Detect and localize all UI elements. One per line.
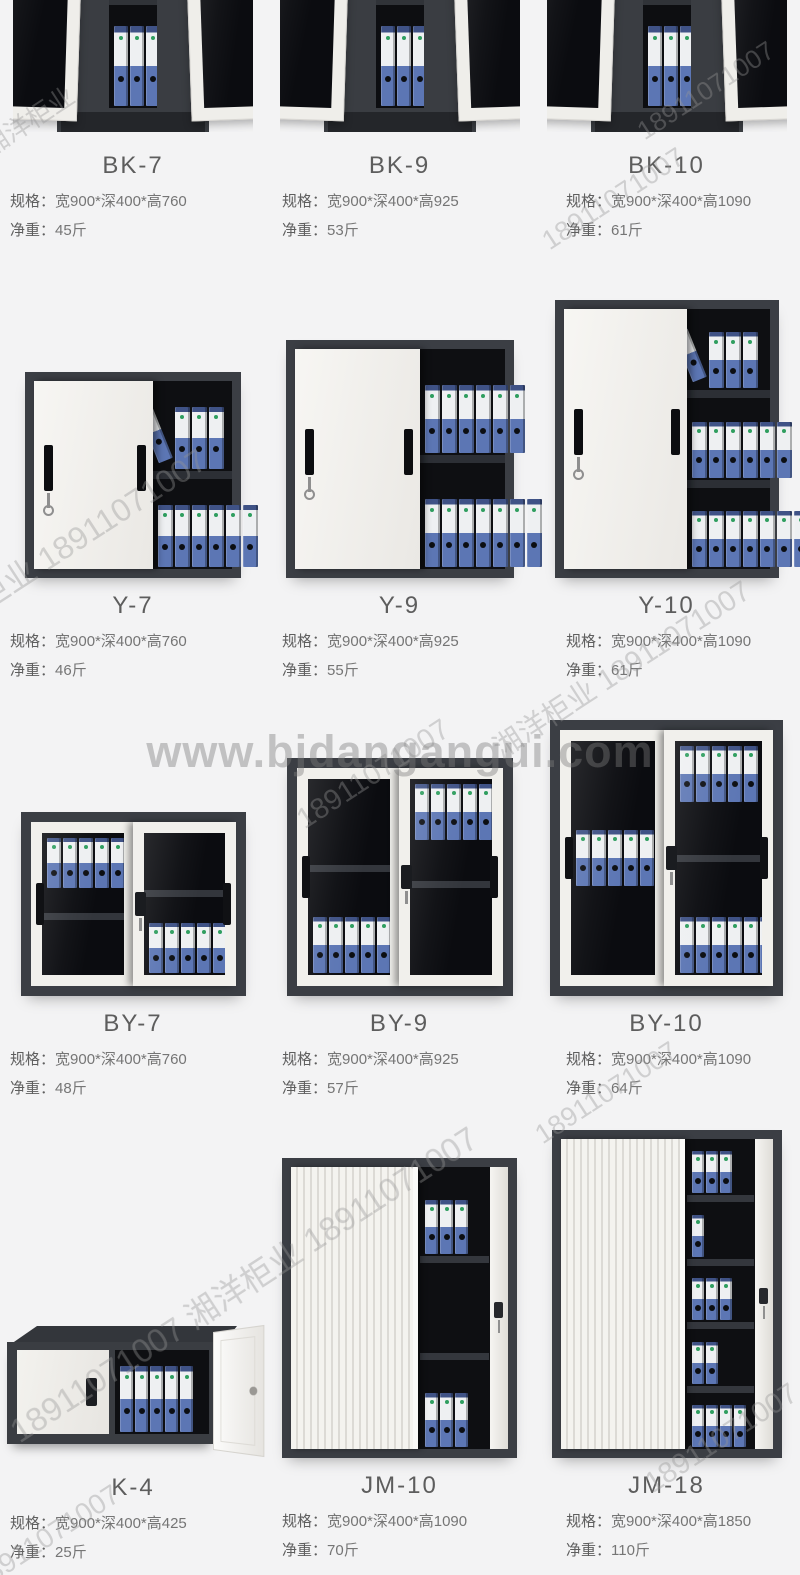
product-specs: 规格：宽900*深400*高760 净重：46斤	[0, 627, 266, 685]
door-handle-icon	[404, 429, 413, 475]
binder	[345, 917, 359, 973]
key-icon	[139, 918, 142, 931]
spec-label: 规格：	[566, 1051, 611, 1068]
binder	[476, 385, 491, 453]
binder-row	[425, 1393, 468, 1447]
product-specs: 规格：宽900*深400*高925 净重：53斤	[266, 187, 533, 245]
weight-value: 70斤	[327, 1542, 359, 1559]
shelf	[687, 1386, 753, 1393]
lock-icon	[135, 892, 146, 916]
binder	[209, 505, 224, 567]
binder	[760, 511, 775, 567]
binder	[728, 917, 742, 973]
shelf	[109, 0, 157, 5]
weight-value: 57斤	[327, 1080, 359, 1097]
product-specs: 规格：宽900*深400*高925 净重：57斤	[266, 1045, 533, 1103]
binder	[130, 26, 144, 106]
binder	[760, 422, 775, 478]
door-handle-icon	[490, 856, 498, 898]
binder	[624, 830, 638, 886]
binder	[111, 838, 124, 888]
binder-row	[692, 332, 758, 388]
shelf	[144, 890, 225, 897]
binder	[442, 385, 457, 453]
shelf	[643, 0, 691, 5]
binder	[47, 838, 61, 888]
glass-door-right	[182, 0, 253, 121]
shelf	[687, 480, 770, 488]
binder	[425, 499, 440, 567]
binder	[696, 917, 710, 973]
tambour-edge-strip	[490, 1167, 508, 1449]
binder	[209, 407, 224, 469]
lock-icon	[666, 846, 677, 870]
binder	[720, 1151, 732, 1193]
weight-label: 净重：	[10, 1080, 55, 1097]
empty-shelf	[420, 1263, 489, 1352]
product-model: Y-7	[0, 590, 266, 622]
shelf-stack	[420, 1167, 489, 1449]
key-icon	[47, 493, 50, 508]
shelf	[420, 1256, 489, 1263]
binder	[640, 830, 654, 886]
spec-row: 规格：宽900*深400*高925	[266, 187, 533, 216]
binder-row	[313, 917, 390, 973]
binder	[213, 923, 225, 973]
binder	[709, 511, 724, 567]
spec-label: 规格：	[282, 1051, 327, 1068]
key-icon	[670, 872, 673, 885]
binder	[726, 511, 741, 567]
weight-row: 净重：110斤	[533, 1536, 800, 1565]
binder	[413, 26, 424, 106]
binder-row	[680, 917, 762, 973]
product-image-y10	[533, 258, 800, 578]
binder	[165, 1366, 178, 1432]
binder	[493, 499, 508, 567]
glass-pane	[280, 0, 339, 108]
binder-row	[692, 422, 792, 478]
glass-pane	[196, 0, 253, 108]
door-handle-icon	[44, 445, 53, 491]
binder	[226, 505, 241, 567]
spec-label: 规格：	[282, 633, 327, 650]
glass-sliding-door-right	[399, 768, 503, 986]
binder	[415, 784, 429, 840]
shelf	[687, 1195, 753, 1202]
binder	[726, 332, 741, 388]
weight-value: 46斤	[55, 662, 87, 679]
shelf	[410, 881, 492, 888]
weight-label: 净重：	[282, 1542, 327, 1559]
shelf	[420, 455, 505, 463]
binder	[243, 505, 258, 567]
glass-pane	[144, 833, 225, 975]
spec-label: 规格：	[282, 1513, 327, 1530]
binder	[425, 1393, 438, 1447]
spec-label: 规格：	[10, 1051, 55, 1068]
binder	[79, 838, 93, 888]
product-model: BK-7	[0, 150, 266, 182]
shelf	[308, 865, 390, 872]
product-model: K-4	[0, 1472, 266, 1504]
cabinet-frame	[21, 812, 246, 996]
shelf	[687, 1259, 753, 1266]
spec-row: 规格：宽900*深400*高925	[266, 627, 533, 656]
binder	[114, 26, 128, 106]
weight-row: 净重：55斤	[266, 656, 533, 685]
cabinet-frame	[555, 300, 779, 578]
binder	[149, 923, 163, 973]
spec-value: 宽900*深400*高760	[55, 1051, 187, 1068]
sliding-door	[564, 309, 687, 569]
product-specs: 规格：宽900*深400*高1850 净重：110斤	[533, 1507, 800, 1565]
product-catalog-page: BK-7 规格：宽900*深400*高760 净重：45斤	[0, 0, 800, 1575]
binder	[440, 1200, 453, 1254]
binder	[313, 917, 327, 973]
binder	[706, 1342, 718, 1384]
spec-label: 规格：	[10, 633, 55, 650]
shelf	[420, 1353, 489, 1360]
cabinet-interior	[687, 309, 770, 569]
binder	[576, 830, 590, 886]
binder-row	[425, 499, 542, 567]
binder-row	[692, 511, 800, 567]
spec-label: 规格：	[566, 1513, 611, 1530]
weight-row: 净重：53斤	[266, 216, 533, 245]
cabinet-interior	[109, 0, 157, 108]
binder-row	[415, 784, 492, 840]
binder	[592, 830, 606, 886]
binder	[63, 838, 77, 888]
binder-row	[425, 385, 525, 453]
binder	[726, 422, 741, 478]
key-icon	[405, 891, 408, 904]
weight-label: 净重：	[282, 662, 327, 679]
shelf	[687, 1322, 753, 1329]
glass-sliding-door-right	[133, 822, 236, 986]
spec-value: 宽900*深400*高760	[55, 193, 187, 210]
weight-row: 净重：57斤	[266, 1074, 533, 1103]
binder	[440, 1393, 453, 1447]
binder	[712, 917, 726, 973]
binder	[442, 499, 457, 567]
spec-value: 宽900*深400*高1090	[327, 1513, 467, 1530]
cabinet-plinth	[328, 112, 472, 132]
shelf	[687, 390, 770, 398]
door-handle-icon	[565, 837, 573, 879]
key-icon	[763, 1306, 765, 1319]
binder	[794, 511, 800, 567]
binder	[680, 917, 694, 973]
lock-icon	[401, 865, 412, 889]
binder	[425, 1200, 438, 1254]
binder	[476, 499, 491, 567]
binder	[146, 26, 157, 106]
binder	[493, 385, 508, 453]
weight-row: 净重：70斤	[266, 1536, 533, 1565]
binder	[425, 385, 440, 453]
weight-value: 61斤	[611, 222, 643, 239]
weight-value: 55斤	[327, 662, 359, 679]
binder	[447, 784, 461, 840]
binder	[760, 917, 762, 973]
lock-icon	[494, 1302, 503, 1318]
shelf	[376, 0, 424, 5]
door-handle-icon	[36, 883, 44, 925]
binder	[397, 26, 411, 106]
product-card: Y-9 规格：宽900*深400*高925 净重：55斤	[266, 258, 533, 685]
product-image-bk9	[266, 0, 533, 132]
door-handle-icon	[305, 429, 314, 475]
glass-sliding-door-left	[31, 822, 135, 986]
glass-pane	[42, 833, 124, 975]
binder	[158, 505, 173, 567]
spec-row: 规格：宽900*深400*高760	[0, 627, 266, 656]
binder	[777, 422, 792, 478]
weight-value: 53斤	[327, 222, 359, 239]
binder	[692, 1342, 704, 1384]
swing-door-open	[213, 1325, 264, 1457]
binder	[608, 830, 622, 886]
cabinet-interior	[376, 0, 424, 108]
binder	[692, 1215, 704, 1257]
binder	[709, 422, 724, 478]
binder-row	[692, 1215, 704, 1257]
spec-label: 规格：	[566, 633, 611, 650]
spec-row: 规格：宽900*深400*高760	[0, 187, 266, 216]
product-model: Y-9	[266, 590, 533, 622]
door-handle-icon	[574, 409, 583, 455]
weight-label: 净重：	[282, 1080, 327, 1097]
shelf	[675, 855, 762, 862]
binder	[777, 511, 792, 567]
binder-row	[576, 830, 654, 886]
spec-row: 规格：宽900*深400*高925	[266, 1045, 533, 1074]
spec-value: 宽900*深400*高925	[327, 633, 459, 650]
binder	[692, 1278, 704, 1320]
product-specs: 规格：宽900*深400*高925 净重：55斤	[266, 627, 533, 685]
binder-row	[692, 1151, 732, 1193]
weight-label: 净重：	[10, 222, 55, 239]
weight-value: 45斤	[55, 222, 87, 239]
tambour-door	[561, 1139, 686, 1449]
binder	[479, 784, 492, 840]
weight-row: 净重：48斤	[0, 1074, 266, 1103]
binder-row	[692, 1278, 732, 1320]
cabinet-interior	[420, 349, 505, 569]
weight-row: 净重：45斤	[0, 216, 266, 245]
cabinet-photo-cropped	[280, 0, 520, 132]
binder	[150, 1366, 163, 1432]
weight-label: 净重：	[282, 222, 327, 239]
binder	[706, 1151, 718, 1193]
binder	[692, 511, 707, 567]
sliding-door	[295, 349, 420, 569]
weight-value: 48斤	[55, 1080, 87, 1097]
binder	[329, 917, 343, 973]
binder	[95, 838, 109, 888]
shelf	[42, 913, 124, 920]
binder	[720, 1278, 732, 1320]
binder	[692, 1151, 704, 1193]
binder	[744, 917, 758, 973]
product-card: BK-9 规格：宽900*深400*高925 净重：53斤	[266, 0, 533, 245]
key-icon	[577, 457, 580, 472]
shelf-stack	[687, 1139, 753, 1449]
product-specs: 规格：宽900*深400*高1090 净重：70斤	[266, 1507, 533, 1565]
weight-label: 净重：	[566, 1542, 611, 1559]
binder-row	[381, 26, 424, 106]
binder	[459, 499, 474, 567]
lock-icon	[759, 1288, 768, 1304]
product-card: JM-18 规格：宽900*深400*高1850 净重：110斤	[533, 1120, 800, 1567]
binder	[692, 422, 707, 478]
glass-pane	[462, 0, 519, 108]
product-model: BY-9	[266, 1008, 533, 1040]
spec-row: 规格：宽900*深400*高1090	[266, 1507, 533, 1536]
weight-label: 净重：	[10, 662, 55, 679]
binder-row	[692, 1342, 718, 1384]
binder	[377, 917, 390, 973]
binder	[743, 422, 758, 478]
binder	[463, 784, 477, 840]
spec-value: 宽900*深400*高1850	[611, 1513, 751, 1530]
binder-row	[114, 26, 157, 106]
binder-row	[149, 923, 225, 973]
binder	[361, 917, 375, 973]
glass-door-left	[280, 0, 352, 121]
cabinet-plinth	[61, 112, 205, 132]
door-handle-icon	[302, 856, 310, 898]
spec-value: 宽900*深400*高925	[327, 193, 459, 210]
product-specs: 规格：宽900*深400*高760 净重：45斤	[0, 187, 266, 245]
product-image-y7	[0, 258, 266, 578]
product-image-y9	[266, 258, 533, 578]
product-specs: 规格：宽900*深400*高760 净重：48斤	[0, 1045, 266, 1103]
binder	[743, 332, 758, 388]
spec-value: 宽900*深400*高925	[327, 1051, 459, 1068]
glass-door-right	[449, 0, 520, 121]
binder	[455, 1200, 468, 1254]
spec-label: 规格：	[10, 193, 55, 210]
product-model: BY-7	[0, 1008, 266, 1040]
weight-row: 净重：46斤	[0, 656, 266, 685]
spec-row: 规格：宽900*深400*高1850	[533, 1507, 800, 1536]
binder	[709, 332, 724, 388]
spec-row: 规格：宽900*深400*高760	[0, 1045, 266, 1074]
binder	[175, 505, 190, 567]
watermark-website: www.bjdangangui.com	[0, 726, 800, 778]
binder	[181, 923, 195, 973]
binder-row	[158, 505, 258, 567]
glass-pane	[410, 779, 492, 975]
binder	[431, 784, 445, 840]
binder	[459, 385, 474, 453]
binder	[648, 26, 662, 106]
binder	[192, 505, 207, 567]
binder	[180, 1366, 193, 1432]
binder	[706, 1278, 718, 1320]
binder	[197, 923, 211, 973]
binder-row	[47, 838, 124, 888]
binder	[743, 511, 758, 567]
key-icon	[308, 477, 311, 492]
weight-value: 110斤	[611, 1542, 650, 1559]
product-model: BK-9	[266, 150, 533, 182]
door-handle-icon	[671, 409, 680, 455]
key-icon	[498, 1320, 500, 1333]
binder	[381, 26, 395, 106]
door-handle-icon	[223, 883, 231, 925]
binder	[165, 923, 179, 973]
binder-row	[425, 1200, 468, 1254]
glass-door-left	[547, 0, 619, 121]
spec-label: 规格：	[282, 193, 327, 210]
binder	[455, 1393, 468, 1447]
cabinet-frame	[286, 340, 514, 578]
door-handle-icon	[760, 837, 768, 879]
spec-value: 宽900*深400*高760	[55, 633, 187, 650]
product-model: JM-10	[266, 1470, 533, 1502]
binder	[510, 385, 525, 453]
binder	[510, 499, 525, 567]
glass-pane	[547, 0, 606, 108]
